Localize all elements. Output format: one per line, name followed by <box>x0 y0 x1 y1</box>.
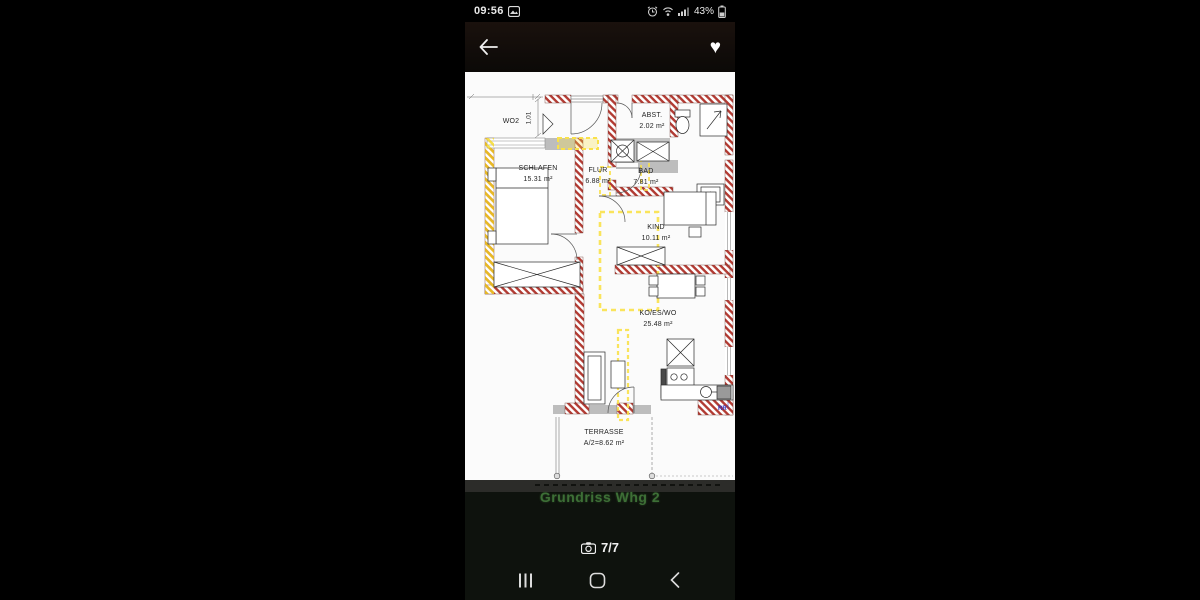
screenshot-notification-icon <box>508 6 520 17</box>
android-nav-bar <box>465 566 735 596</box>
camera-icon <box>581 542 596 554</box>
recents-button[interactable] <box>505 566 545 594</box>
schlafen-furniture <box>488 168 580 287</box>
nav-back-button[interactable] <box>655 566 695 594</box>
clock: 09:56 <box>474 5 504 17</box>
photo-counter: 7/7 <box>465 540 735 555</box>
wifi-calling-icon <box>662 6 674 17</box>
room-label-koeswo: KO/ES/WO 25.48 m² <box>640 309 677 330</box>
home-icon <box>589 572 606 589</box>
photo-counter-text: 7/7 <box>601 540 619 555</box>
room-label-schlafen: SCHLAFEN 15.31 m² <box>519 164 558 185</box>
floor-plan-drawing <box>465 72 735 480</box>
recents-icon <box>518 573 533 588</box>
dimension-label: 1,01 <box>526 112 533 125</box>
home-button[interactable] <box>577 566 617 594</box>
terrace-outline <box>554 417 733 479</box>
back-button[interactable] <box>477 37 500 57</box>
drainpipe-label: RR <box>718 406 727 412</box>
kitchen-units <box>661 339 733 400</box>
door-label-wo2: WO2 <box>503 117 520 128</box>
favorite-button[interactable]: ♥ <box>708 36 723 59</box>
battery-percent: 43% <box>694 6 714 17</box>
status-bar: 09:56 43% <box>465 0 735 22</box>
battery-icon <box>718 5 726 18</box>
back-arrow-icon <box>479 39 498 55</box>
gallery-toolbar: ♥ <box>465 22 735 72</box>
floor-plan-image[interactable]: SCHLAFEN 15.31 m² FLUR 6.88 m² BAD 7.81 … <box>465 72 735 480</box>
room-label-bad: BAD 7.81 m² <box>633 167 658 188</box>
flur-appliances <box>611 140 669 162</box>
room-label-terrasse: TERRASSE A/2=8.62 m² <box>584 428 625 449</box>
alarm-icon <box>647 6 658 17</box>
signal-icon <box>678 6 690 17</box>
room-label-abst: ABST. 2.02 m² <box>639 111 664 132</box>
heart-icon: ♥ <box>710 38 721 57</box>
room-label-flur: FLUR 6.88 m² <box>585 166 610 187</box>
phone-screen: 09:56 43% <box>465 0 735 600</box>
room-label-kind: KIND 10.11 m² <box>642 223 671 244</box>
nav-back-icon <box>670 572 680 588</box>
image-caption: Grundriss Whg 2 <box>465 489 735 505</box>
bath-fixtures <box>675 104 727 205</box>
